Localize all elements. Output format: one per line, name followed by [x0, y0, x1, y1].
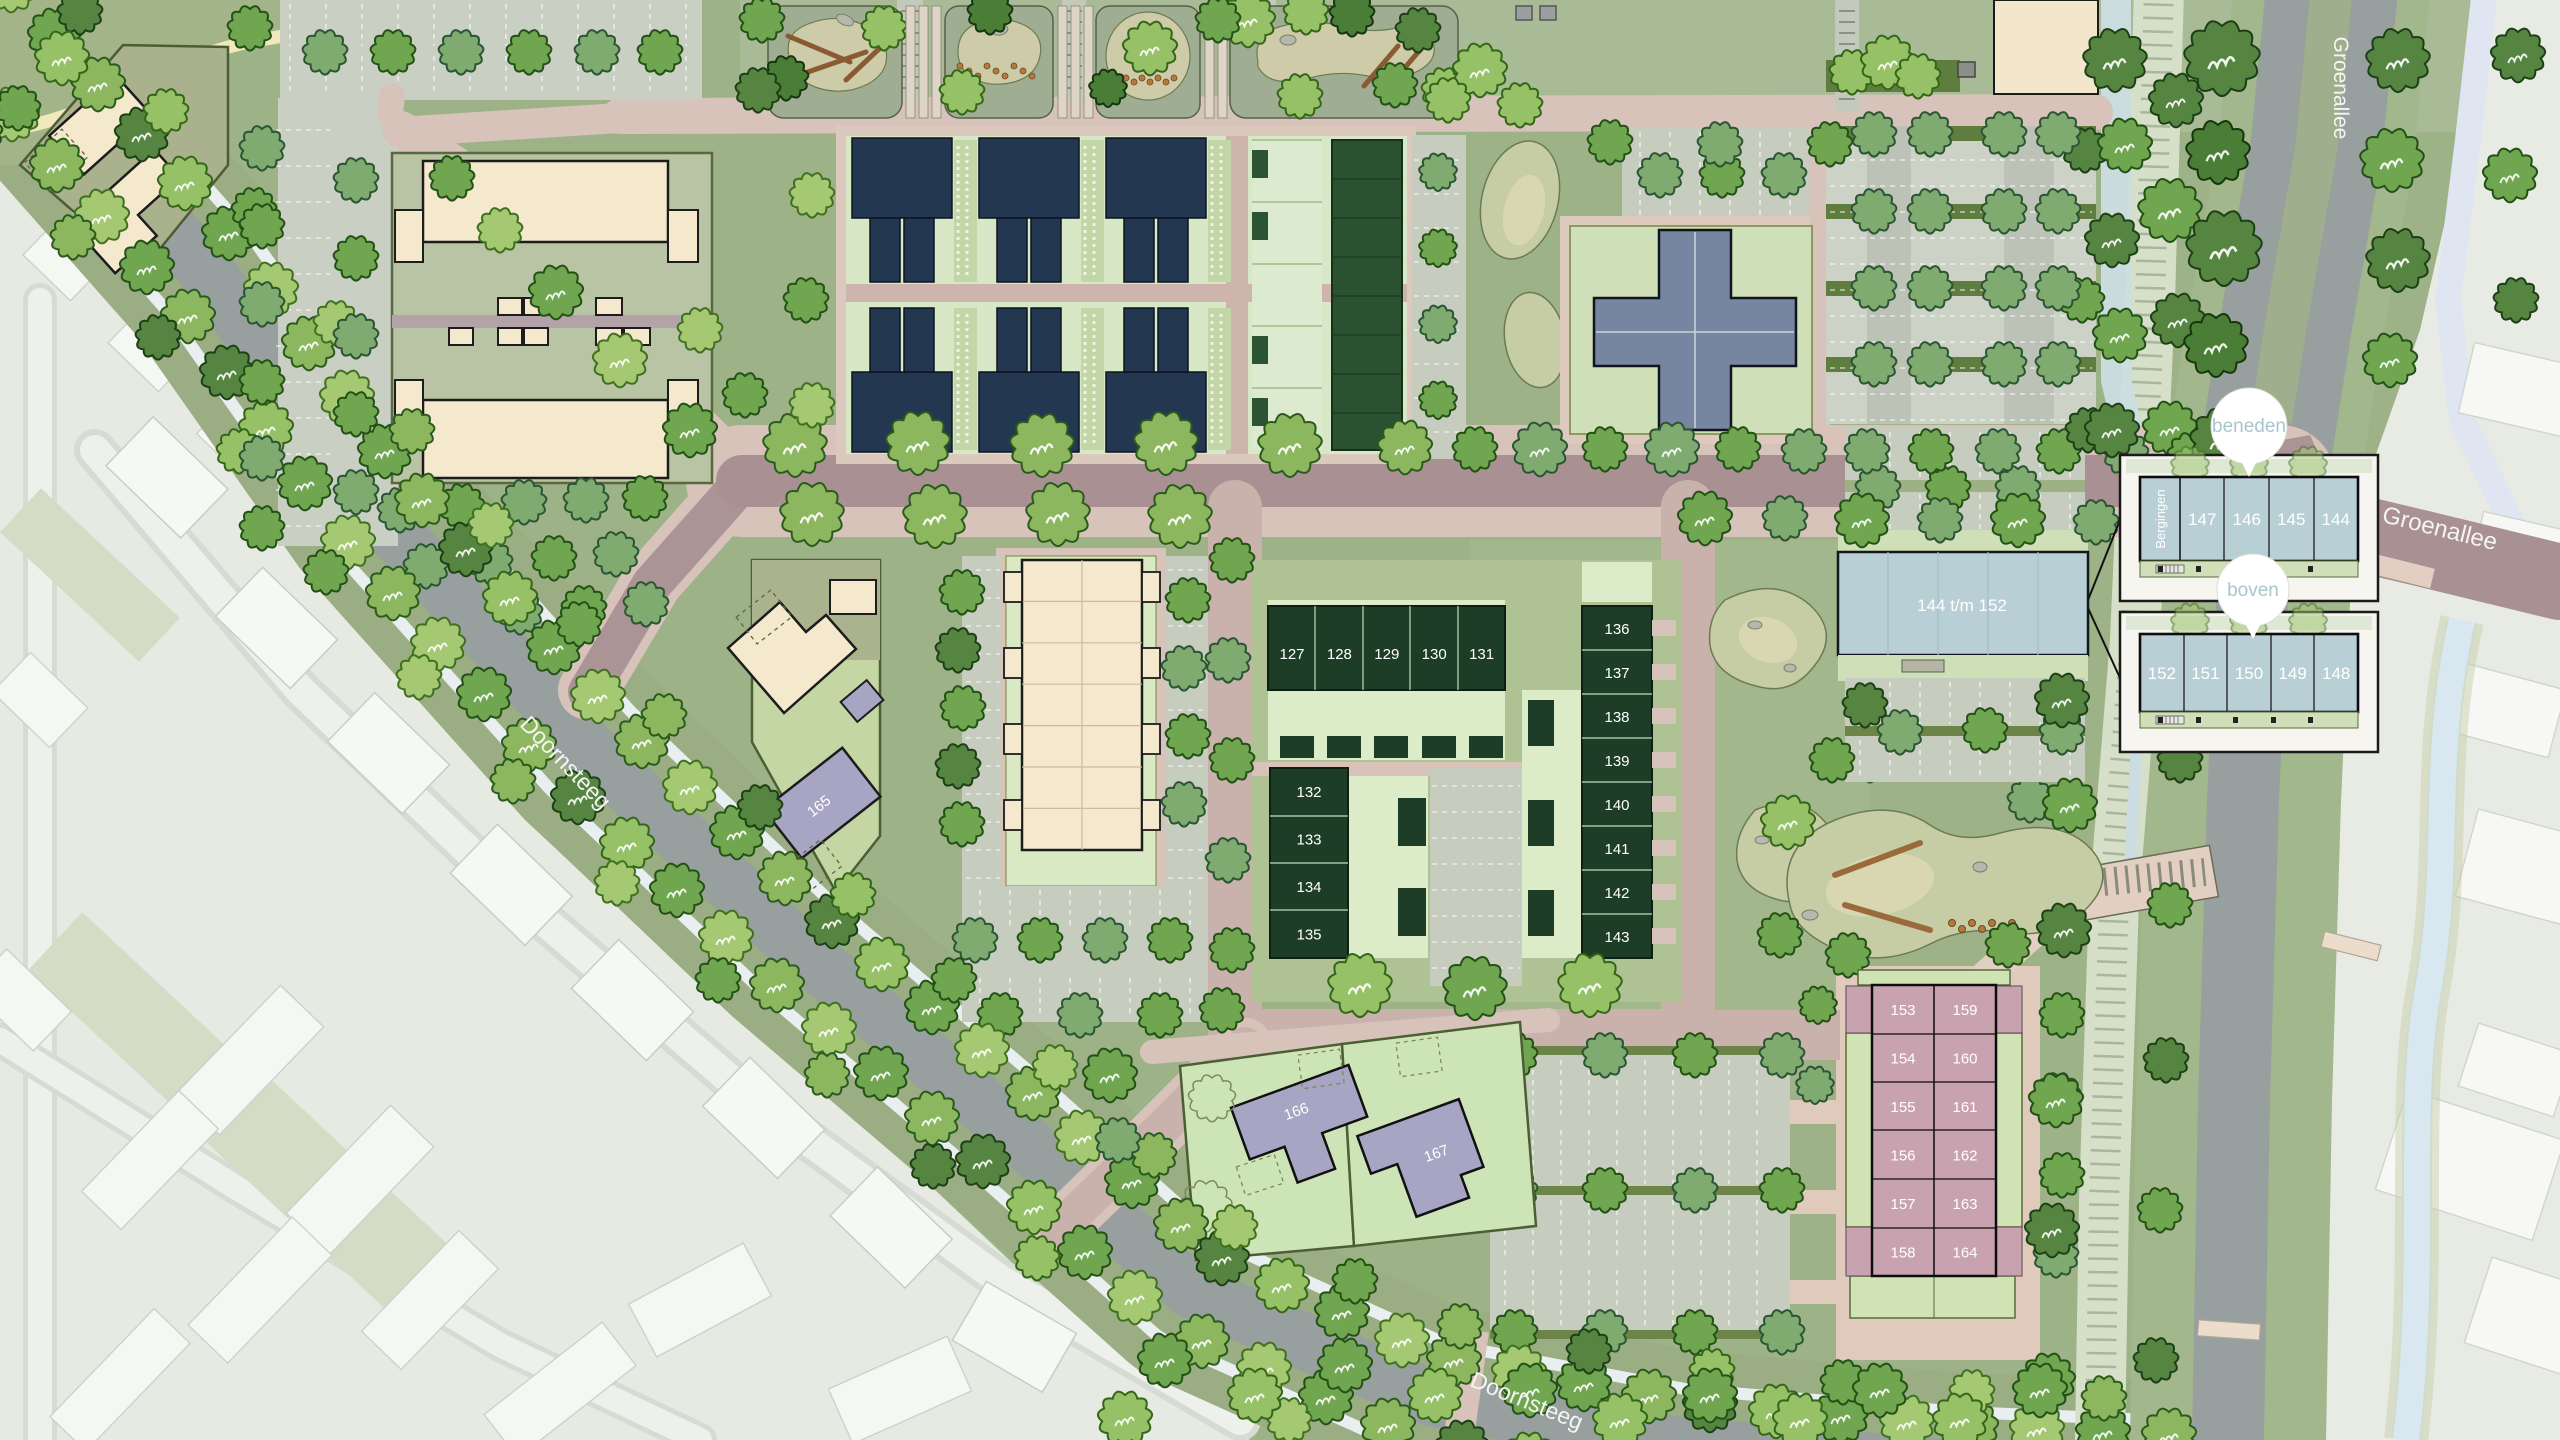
svg-text:143: 143 — [1604, 929, 1629, 946]
svg-text:150: 150 — [2235, 664, 2263, 683]
svg-text:138: 138 — [1604, 709, 1629, 726]
svg-text:152: 152 — [2148, 664, 2176, 683]
svg-text:160: 160 — [1952, 1051, 1977, 1068]
svg-text:149: 149 — [2278, 664, 2306, 683]
svg-text:145: 145 — [2277, 510, 2305, 529]
svg-text:162: 162 — [1952, 1148, 1977, 1165]
svg-text:161: 161 — [1952, 1099, 1977, 1116]
svg-text:163: 163 — [1952, 1196, 1977, 1213]
svg-text:153: 153 — [1890, 1002, 1915, 1019]
svg-text:142: 142 — [1604, 885, 1629, 902]
svg-text:boven: boven — [2227, 580, 2279, 601]
svg-text:144: 144 — [2322, 510, 2350, 529]
svg-text:141: 141 — [1604, 841, 1629, 858]
svg-text:146: 146 — [2233, 510, 2261, 529]
svg-text:136: 136 — [1604, 621, 1629, 638]
svg-text:157: 157 — [1890, 1196, 1915, 1213]
svg-text:139: 139 — [1604, 753, 1629, 770]
svg-text:beneden: beneden — [2212, 416, 2286, 437]
svg-text:155: 155 — [1890, 1099, 1915, 1116]
svg-text:164: 164 — [1952, 1245, 1977, 1262]
svg-text:147: 147 — [2188, 510, 2216, 529]
svg-text:131: 131 — [1469, 646, 1494, 663]
svg-text:151: 151 — [2191, 664, 2219, 683]
svg-text:156: 156 — [1890, 1148, 1915, 1165]
svg-text:148: 148 — [2322, 664, 2350, 683]
svg-text:Groenallee: Groenallee — [2329, 37, 2352, 140]
svg-text:140: 140 — [1604, 797, 1629, 814]
svg-text:127: 127 — [1279, 646, 1304, 663]
svg-text:129: 129 — [1374, 646, 1399, 663]
svg-text:130: 130 — [1422, 646, 1447, 663]
svg-text:135: 135 — [1296, 927, 1321, 944]
svg-text:154: 154 — [1890, 1051, 1915, 1068]
svg-text:158: 158 — [1890, 1245, 1915, 1262]
svg-text:Bergingen: Bergingen — [2153, 489, 2168, 548]
svg-text:134: 134 — [1296, 879, 1321, 896]
svg-text:144 t/m 152: 144 t/m 152 — [1917, 596, 2007, 615]
svg-text:132: 132 — [1296, 784, 1321, 801]
svg-text:159: 159 — [1952, 1002, 1977, 1019]
svg-text:128: 128 — [1327, 646, 1352, 663]
svg-text:133: 133 — [1296, 832, 1321, 849]
svg-text:137: 137 — [1604, 665, 1629, 682]
